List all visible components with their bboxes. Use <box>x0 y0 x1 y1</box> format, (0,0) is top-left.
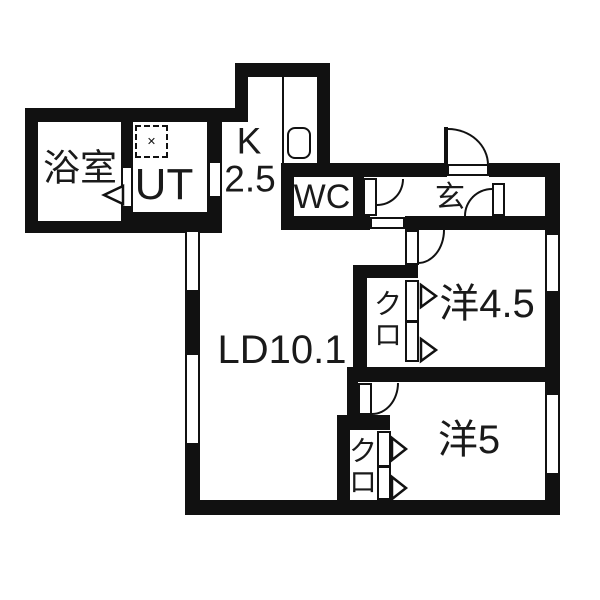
closet45-panel-lower <box>405 321 419 362</box>
wall-kitchen-left <box>235 63 248 122</box>
room-label-entrance: 玄 <box>435 183 465 213</box>
kitchen-sink-icon <box>287 127 311 159</box>
wall-room5-stub <box>347 382 358 417</box>
ut-door-leaf <box>208 161 222 198</box>
entrance-side-door-leaf <box>492 183 505 216</box>
wc-door-swing-arc <box>377 179 404 206</box>
room-label-kitchen: K <box>237 123 262 160</box>
room45-door-swing-arc <box>418 230 445 264</box>
entry-door-swing-arc <box>448 128 489 165</box>
room-size-kitchen: 2.5 <box>224 161 275 198</box>
wall-hall-bottom-right <box>405 216 560 230</box>
room-label-toilet: WC <box>294 180 351 214</box>
room5-door-leaf <box>358 383 372 415</box>
bath-door-leaf <box>121 166 133 208</box>
closet45-triangle-lower-icon <box>421 339 436 361</box>
window-room45 <box>545 233 560 293</box>
closet45-panel-upper <box>405 280 419 322</box>
closet-label-45: クロ <box>374 289 402 352</box>
closet5-triangle-upper-icon <box>392 438 406 460</box>
kitchen-counter-edge <box>282 75 284 165</box>
wall-rooms-divider <box>347 367 560 382</box>
room5-door-swing-arc <box>372 383 399 415</box>
wc-door-leaf <box>363 178 377 216</box>
closet5-triangle-lower-icon <box>392 477 406 499</box>
wall-bath-bottom <box>25 221 133 233</box>
washer-pan-mark: ✕ <box>147 135 156 148</box>
room-label-utility: UT <box>135 163 194 207</box>
window-room5 <box>545 393 560 475</box>
wall-topleft-left <box>25 108 38 233</box>
hall-ld-opening <box>370 217 405 229</box>
room-label-western-45: 洋4.5 <box>439 284 535 324</box>
washer-pan-icon: ✕ <box>135 125 168 158</box>
closet-label-5: クロ <box>349 436 377 499</box>
window-ld-upper <box>185 230 200 292</box>
room-label-bathroom: 浴室 <box>43 150 117 187</box>
closet5-panel-lower <box>377 466 391 500</box>
wall-bottom-outer <box>185 500 560 515</box>
entrance-side-door-swing-arc <box>464 188 492 216</box>
window-ld-lower <box>185 353 200 445</box>
wall-kitchen-right <box>317 63 330 165</box>
room-label-western-5: 洋5 <box>438 420 500 460</box>
closet5-panel-upper <box>377 431 391 467</box>
room45-door-leaf <box>405 230 419 265</box>
room-label-living-dining: LD10.1 <box>218 330 347 370</box>
wall-closet45-left <box>353 265 367 370</box>
wall-hall-bottom-left <box>281 216 370 230</box>
floor-plan-canvas: ✕ 浴室 UT K 2.5 WC 玄 LD10.1 洋4.5 洋5 クロ クロ <box>0 0 600 600</box>
closet45-triangle-upper-icon <box>421 285 436 307</box>
wall-hall-top-left <box>281 163 447 177</box>
entry-threshold <box>447 164 489 176</box>
